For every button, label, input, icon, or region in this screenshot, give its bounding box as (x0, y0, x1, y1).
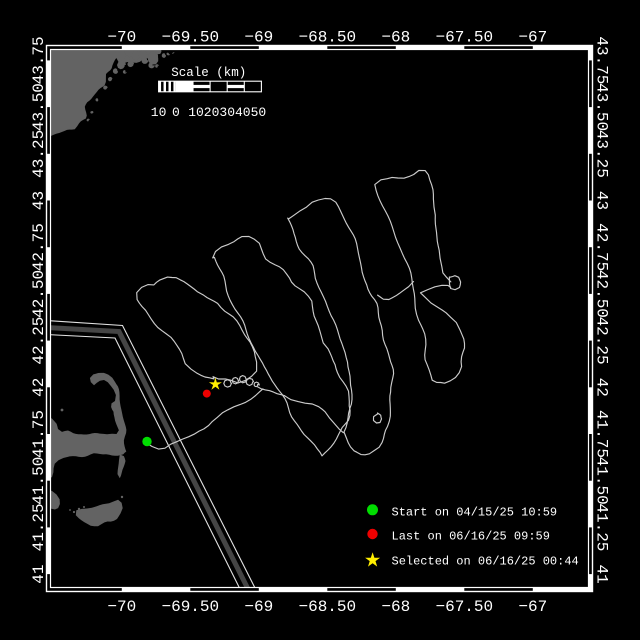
svg-text:−67.50: −67.50 (435, 29, 493, 47)
svg-text:43.25: 43.25 (593, 130, 611, 178)
svg-text:41.50: 41.50 (593, 457, 611, 505)
svg-text:42.25: 42.25 (593, 317, 611, 365)
svg-text:43.75: 43.75 (593, 36, 611, 84)
svg-text:Start on 04/15/25 10:59: Start on 04/15/25 10:59 (392, 506, 558, 520)
svg-text:−67: −67 (518, 29, 547, 47)
svg-text:42.25: 42.25 (30, 317, 48, 365)
svg-text:−67.50: −67.50 (435, 598, 493, 616)
svg-text:−70: −70 (107, 598, 136, 616)
svg-text:41: 41 (593, 564, 611, 583)
svg-text:43.75: 43.75 (30, 36, 48, 84)
svg-text:41: 41 (30, 564, 48, 583)
svg-text:Last on 06/16/25 09:59: Last on 06/16/25 09:59 (392, 530, 550, 544)
svg-text:10: 10 (151, 105, 167, 120)
svg-text:43.50: 43.50 (593, 83, 611, 131)
svg-text:41.50: 41.50 (30, 457, 48, 505)
svg-text:42.75: 42.75 (30, 223, 48, 271)
svg-text:1020304050: 1020304050 (188, 105, 266, 120)
svg-text:Scale (km): Scale (km) (171, 66, 246, 80)
svg-text:41.75: 41.75 (30, 410, 48, 458)
svg-text:43: 43 (30, 191, 48, 210)
svg-text:−67: −67 (518, 598, 547, 616)
svg-text:−68.50: −68.50 (298, 598, 356, 616)
svg-text:43: 43 (593, 191, 611, 210)
svg-text:−69: −69 (244, 598, 273, 616)
svg-text:43.50: 43.50 (30, 83, 48, 131)
svg-text:−68: −68 (381, 29, 410, 47)
svg-text:42.50: 42.50 (30, 270, 48, 318)
svg-text:−69.50: −69.50 (161, 598, 219, 616)
svg-text:41.75: 41.75 (593, 410, 611, 458)
svg-text:Selected on 06/16/25 00:44: Selected on 06/16/25 00:44 (392, 555, 579, 569)
svg-text:0: 0 (172, 105, 180, 120)
svg-text:−69.50: −69.50 (161, 29, 219, 47)
svg-text:43.25: 43.25 (30, 130, 48, 178)
svg-text:41.25: 41.25 (593, 503, 611, 551)
svg-text:42: 42 (30, 378, 48, 397)
svg-text:42: 42 (593, 378, 611, 397)
svg-text:−69: −69 (244, 29, 273, 47)
svg-text:41.25: 41.25 (30, 503, 48, 551)
svg-text:−68: −68 (381, 598, 410, 616)
svg-text:42.75: 42.75 (593, 223, 611, 271)
svg-text:42.50: 42.50 (593, 270, 611, 318)
svg-text:−70: −70 (107, 29, 136, 47)
svg-text:−68.50: −68.50 (298, 29, 356, 47)
